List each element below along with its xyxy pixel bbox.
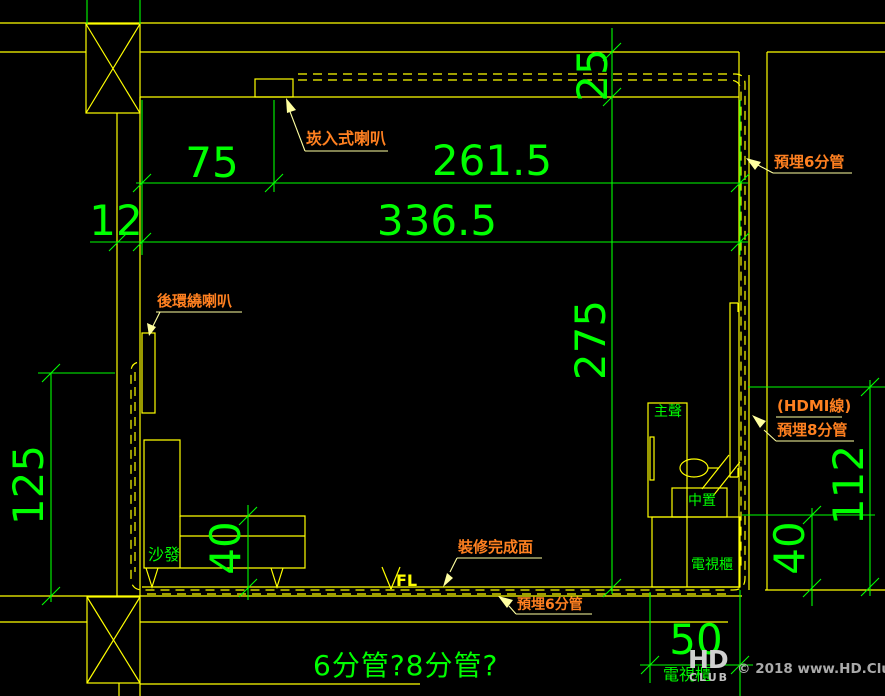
dim-25: 25 [572,48,614,101]
dim-261-5: 261.5 [432,140,552,182]
embed-6-conduit-bottom-label: 預埋6分管 [517,598,583,612]
cad-floorplan-screenshot: 75 261.5 336.5 12 25 275 125 40 40 112 5… [0,0,885,696]
finish-surface-label: 裝修完成面 [458,540,533,555]
column-bottom-left [87,597,140,696]
center-speaker-label: 中置 [688,494,716,508]
tv-cabinet-label: 電視櫃 [691,558,733,572]
hd-club-logo-sub: CLUB [689,672,729,683]
dim-12: 12 [89,200,142,242]
tv-cabinet-outline [652,517,740,587]
hdmi-line-label: (HDMI線) [777,399,851,414]
rear-surround-speaker-label: 後環繞喇叭 [157,294,232,309]
main-speaker-outline [648,403,687,517]
embed-6-conduit-top-label: 預埋6分管 [774,155,844,170]
ceiling-speaker-symbol [255,79,293,97]
wall-tv-outline [730,303,738,477]
column-top-left [86,24,140,113]
watermark-credit: © 2018 www.HD.Club.tw [737,663,885,677]
hd-club-logo: HD [688,651,728,670]
drawing-canvas [0,0,885,696]
embed-8-conduit-label: 預埋8分管 [777,423,847,438]
dim-112: 112 [828,445,870,525]
dim-125: 125 [8,445,50,525]
dimension-lines [38,0,885,696]
dim-40-sofa: 40 [205,521,247,574]
equipment-swivel-symbol [680,455,740,496]
sofa-label: 沙發 [148,547,180,563]
dim-40-right: 40 [769,521,811,574]
dim-75: 75 [185,142,238,184]
rear-surround-speaker-symbol [142,333,155,413]
conduit-question-text: 6分管?8分管? [313,652,498,680]
dim-275: 275 [570,300,612,380]
main-speaker-label: 主聲 [654,405,682,419]
recessed-speaker-label: 崁入式喇叭 [306,131,386,147]
floor-level-label: FL [396,573,417,589]
dim-336-5: 336.5 [377,200,497,242]
